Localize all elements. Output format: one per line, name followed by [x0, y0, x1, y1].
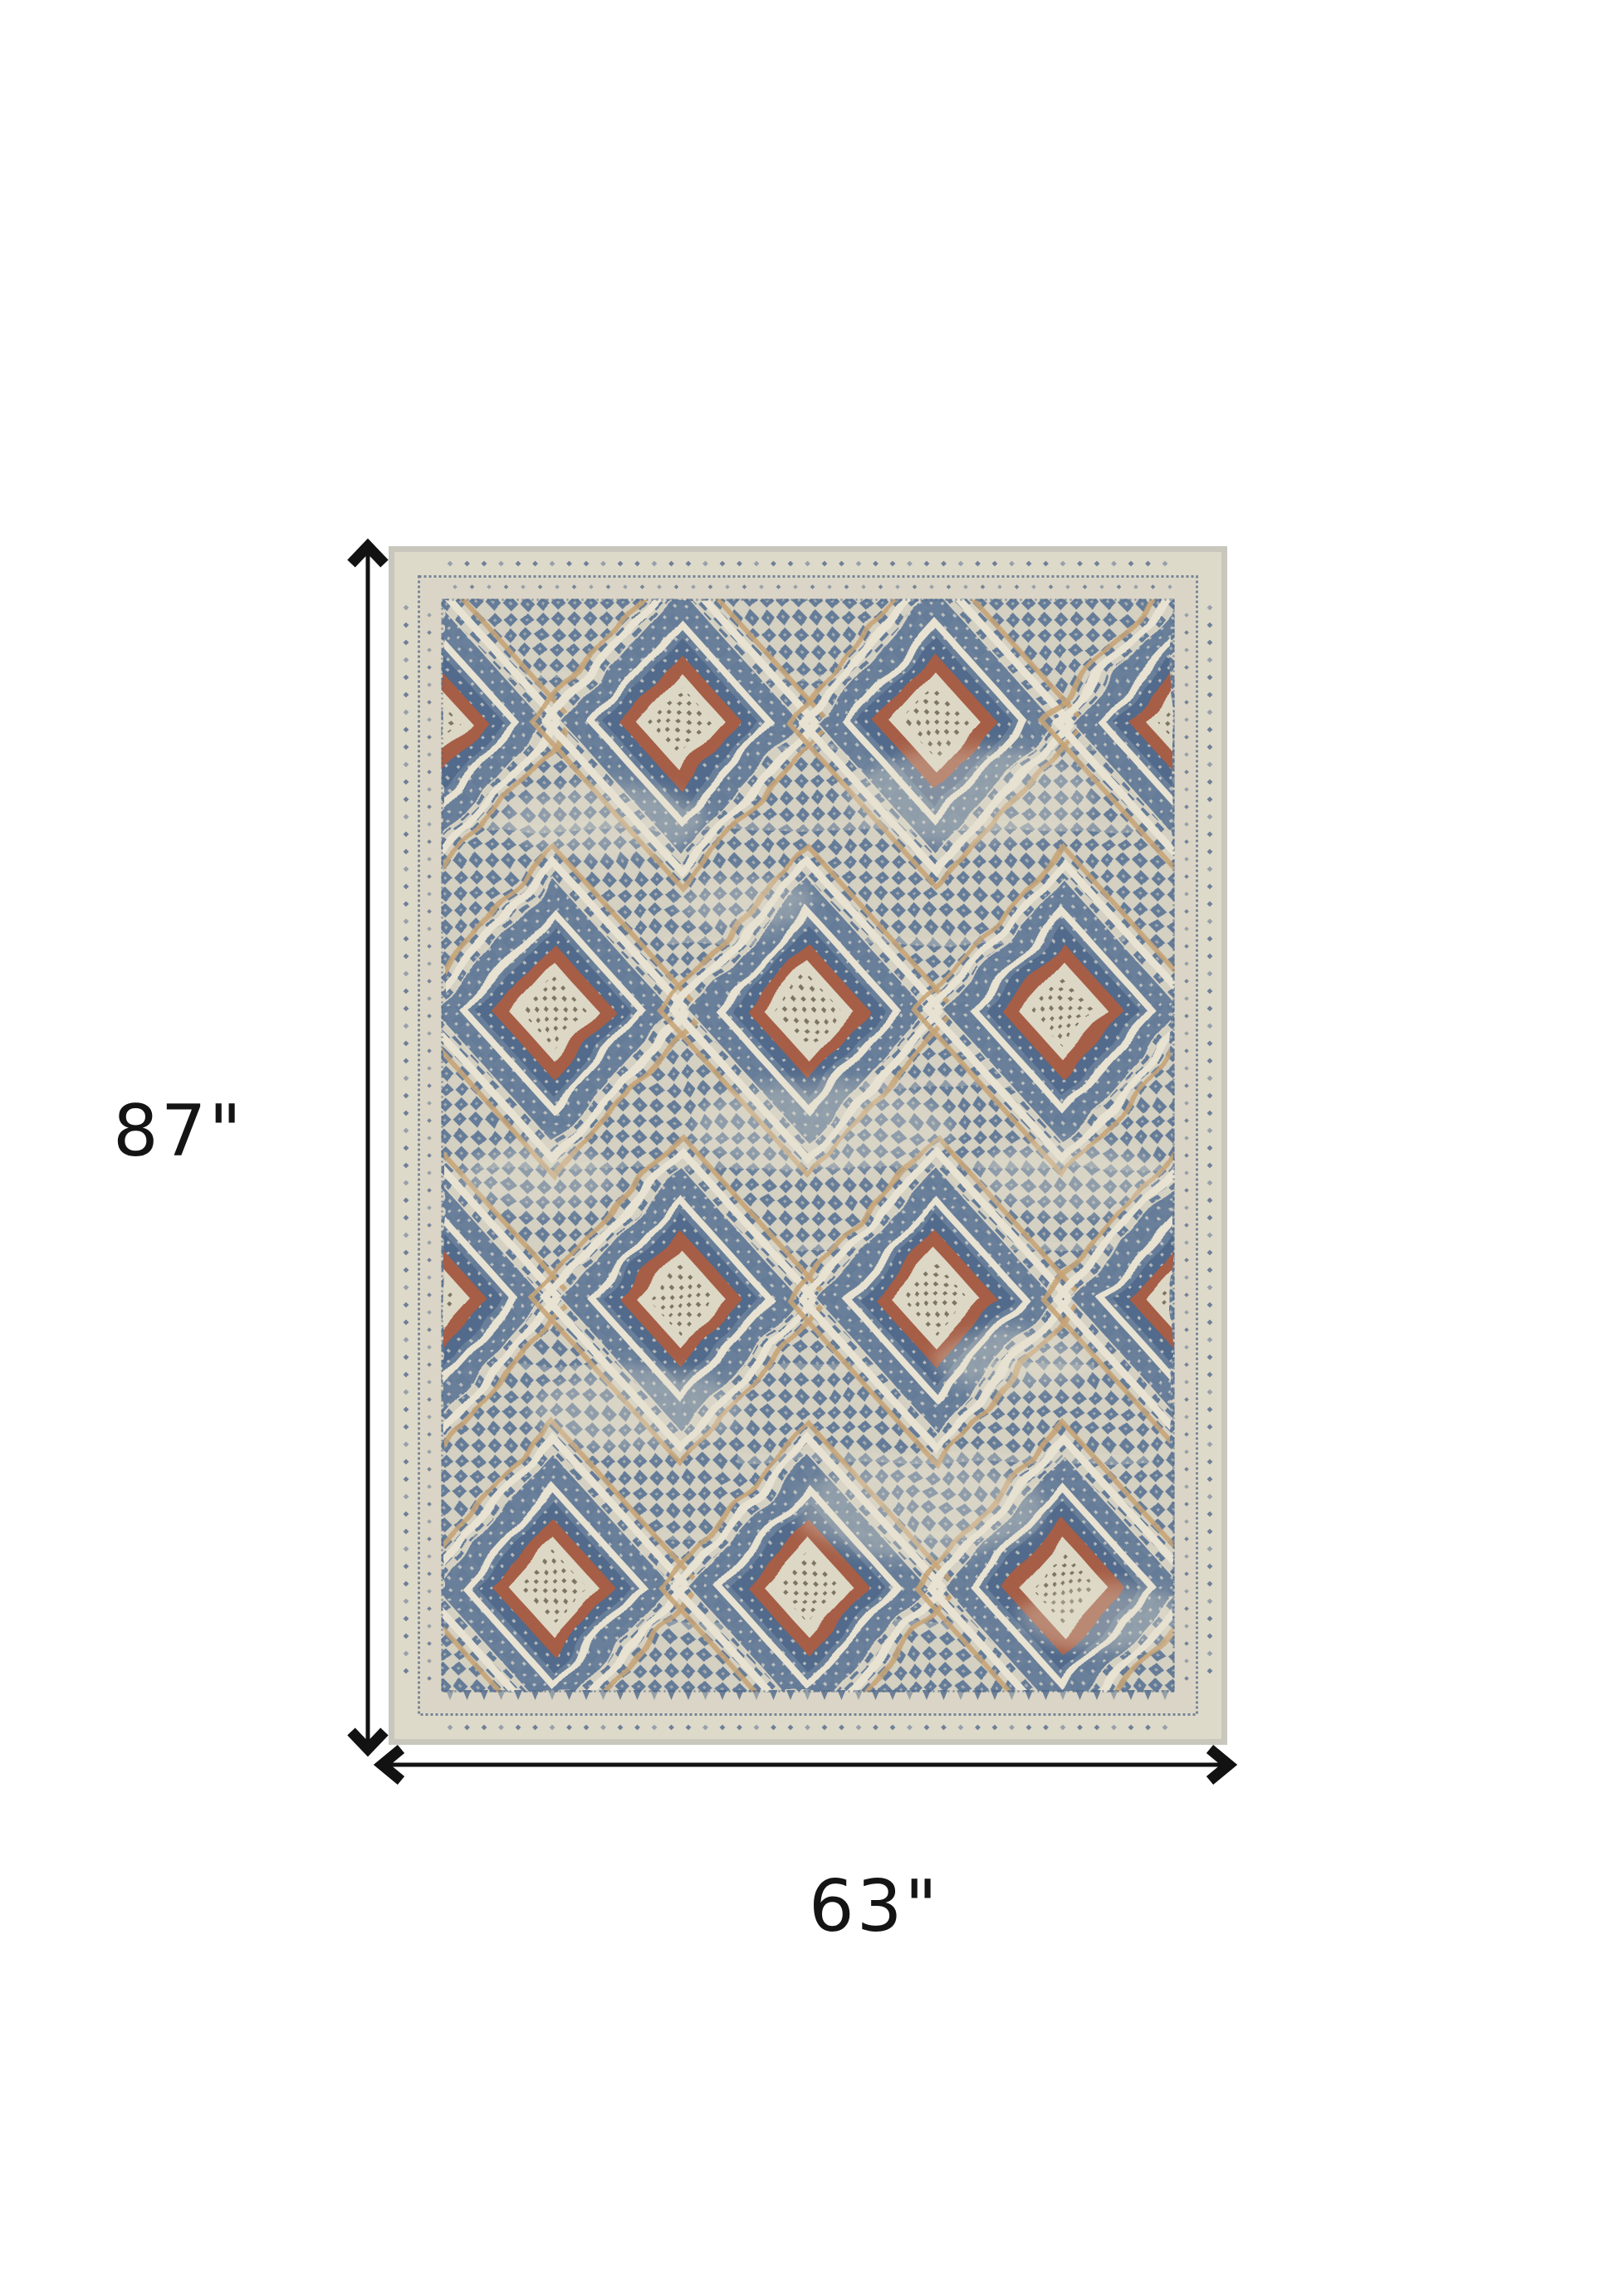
height-arrow-icon — [351, 546, 384, 1749]
product-dimension-image: 87" 63" — [0, 0, 1615, 2296]
rug-graphic — [389, 546, 1227, 1745]
width-dimension-label: 63" — [779, 1869, 970, 1944]
height-dimension-label: 87" — [83, 1094, 274, 1169]
rug-product-image — [389, 546, 1227, 1745]
width-arrow-icon — [382, 1749, 1229, 1781]
